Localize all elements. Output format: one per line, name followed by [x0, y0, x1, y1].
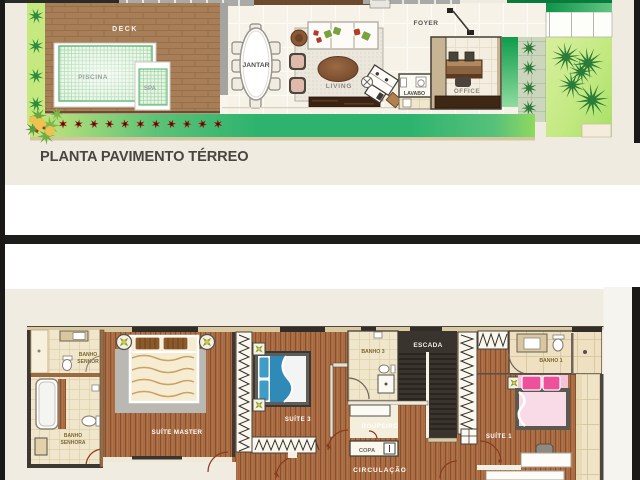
svg-text:FOYER: FOYER	[414, 20, 439, 27]
svg-text:SPA: SPA	[144, 86, 157, 92]
svg-text:SUÍTE MASTER: SUÍTE MASTER	[152, 428, 203, 436]
svg-text:BANHO 1: BANHO 1	[539, 358, 562, 364]
svg-text:ROUPEIRO: ROUPEIRO	[361, 423, 398, 430]
svg-text:SUÍTE 3: SUÍTE 3	[285, 415, 311, 423]
svg-text:SENHORA: SENHORA	[60, 440, 85, 446]
svg-text:COPA: COPA	[359, 448, 376, 454]
svg-text:OFFICE: OFFICE	[454, 88, 480, 95]
svg-text:PLANTA PAVIMENTO TÉRREO: PLANTA PAVIMENTO TÉRREO	[40, 148, 249, 165]
svg-text:BANHO: BANHO	[64, 433, 82, 439]
svg-text:SUÍTE 1: SUÍTE 1	[486, 432, 512, 440]
svg-text:BANHO 3: BANHO 3	[361, 349, 384, 355]
svg-text:DECK: DECK	[112, 26, 138, 33]
svg-text:LIVING: LIVING	[326, 83, 352, 90]
svg-text:LAVABO: LAVABO	[404, 91, 425, 97]
svg-text:JANTAR: JANTAR	[242, 62, 269, 69]
svg-text:PISCINA: PISCINA	[78, 74, 108, 81]
svg-text:BANHO: BANHO	[79, 352, 97, 358]
svg-text:ESCADA: ESCADA	[413, 342, 442, 349]
svg-text:CIRCULAÇÃO: CIRCULAÇÃO	[353, 465, 407, 474]
